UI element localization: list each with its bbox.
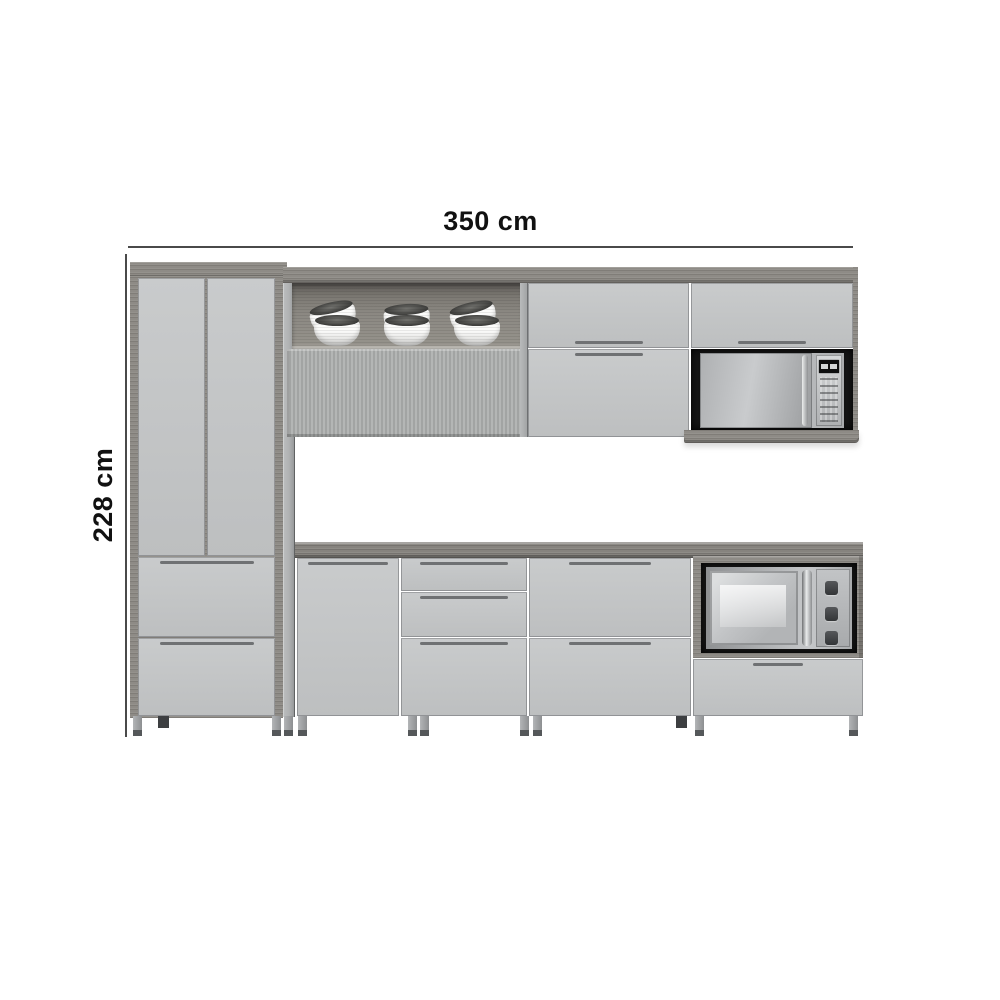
base-cabinet-door (297, 558, 399, 716)
base-drawer-wide-2 (529, 638, 691, 716)
bowl (383, 308, 430, 336)
wall-module-divider-panel (520, 283, 528, 437)
oven-niche (701, 563, 857, 653)
drawer-handle (420, 642, 508, 645)
microwave-control-panel (816, 355, 842, 426)
width-dimension-line (128, 246, 853, 248)
wall-door-top-left (528, 283, 689, 348)
cabinet-foot (298, 716, 307, 736)
tall-cabinet-door-right (207, 278, 275, 556)
oven-control-panel (816, 569, 850, 647)
cabinet-foot (676, 716, 687, 728)
oven-knob (825, 607, 838, 621)
oven-window (710, 571, 798, 645)
tall-cabinet-door-left (138, 278, 205, 556)
cabinet-foot (133, 716, 142, 736)
cabinet-foot (533, 716, 542, 736)
door-handle (575, 341, 643, 344)
height-dimension-label: 228 cm (83, 445, 123, 545)
width-dimension-label: 350 cm (128, 206, 853, 237)
door-handle (575, 353, 643, 356)
door-handle (308, 562, 388, 565)
tall-cabinet-drawer-1 (138, 557, 275, 637)
product-image: 350 cm 228 cm (0, 0, 1000, 1000)
bowl (454, 320, 500, 346)
tall-cabinet-drawer-2 (138, 638, 275, 716)
built-in-oven (706, 567, 852, 649)
microwave-niche (691, 349, 853, 430)
microwave-door (700, 353, 812, 428)
cabinet-foot (272, 716, 281, 736)
drawer-handle (160, 642, 254, 645)
oven-handle (802, 570, 812, 646)
cabinet-foot (420, 716, 429, 736)
cabinet-foot (284, 716, 293, 736)
wall-cabinet-top-strip (283, 267, 857, 283)
microwave-shelf (684, 430, 859, 443)
bowl-stack (312, 302, 362, 346)
bowl-stack (452, 302, 502, 346)
bowl-stack (382, 302, 432, 346)
microwave-keypad (820, 377, 838, 422)
wall-module-right-side (853, 267, 858, 431)
base-drawer-large (401, 638, 527, 716)
height-dimension-line (125, 254, 127, 737)
bowl (314, 320, 360, 346)
wall-door-top-right (691, 283, 853, 348)
drawer-handle (569, 562, 651, 565)
microwave (700, 353, 844, 428)
bowl (309, 302, 360, 338)
wall-door-bottom-left (528, 349, 689, 437)
drawer-handle (753, 663, 803, 666)
drawer-handle (160, 561, 254, 564)
drawer-handle (569, 642, 651, 645)
oven-cabinet-drawer (693, 659, 863, 716)
oven-knob (825, 581, 838, 595)
fluted-lift-door (287, 349, 523, 437)
cabinet-foot (408, 716, 417, 736)
open-shelf-niche (292, 283, 523, 349)
microwave-display (819, 360, 839, 373)
drawer-handle (420, 562, 508, 565)
bowl (384, 320, 430, 346)
cabinet-foot (158, 716, 169, 728)
oven-cabinet-carcass (693, 556, 863, 658)
oven-knob (825, 631, 838, 645)
cabinet-foot (695, 716, 704, 736)
bowl (449, 302, 500, 338)
base-drawer-small-1 (401, 558, 527, 591)
base-drawer-wide-1 (529, 558, 691, 637)
tall-cabinet-carcass (130, 276, 283, 718)
base-drawer-small-2 (401, 592, 527, 637)
microwave-handle (802, 355, 808, 426)
drawer-handle (420, 596, 508, 599)
door-handle (738, 341, 806, 344)
cabinet-foot (520, 716, 529, 736)
cabinet-foot (849, 716, 858, 736)
